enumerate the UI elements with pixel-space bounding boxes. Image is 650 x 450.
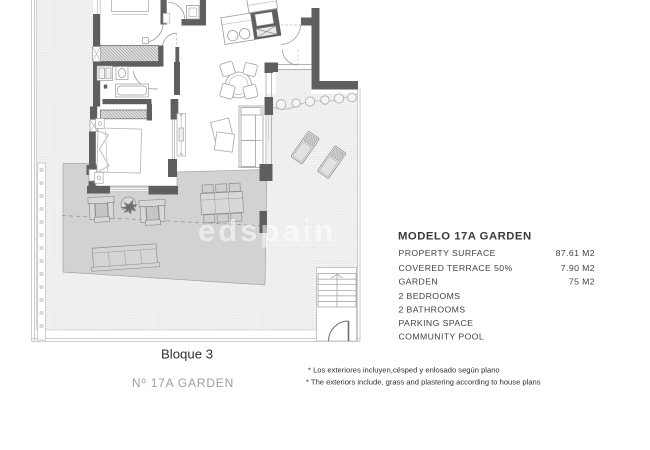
svg-text:PARKING SPACE: PARKING SPACE <box>399 318 474 328</box>
svg-text:Bloque 3: Bloque 3 <box>161 347 213 362</box>
svg-text:87.61 M2: 87.61 M2 <box>556 248 595 258</box>
svg-text:MODELO 17A GARDEN: MODELO 17A GARDEN <box>398 231 532 243</box>
svg-text:75 M2: 75 M2 <box>569 276 595 286</box>
svg-text:* Los exteriores incluyen,césp: * Los exteriores incluyen,césped y enlos… <box>308 366 500 375</box>
svg-text:edspain: edspain <box>198 213 336 248</box>
svg-text:* The exteriors include, grass: * The exteriors include, grass and plast… <box>306 378 541 387</box>
svg-text:PROPERTY SURFACE: PROPERTY SURFACE <box>399 248 496 258</box>
svg-text:GARDEN: GARDEN <box>399 276 439 286</box>
svg-text:COVERED TERRACE 50%: COVERED TERRACE 50% <box>399 263 513 273</box>
svg-text:2 BATHROOMS: 2 BATHROOMS <box>399 304 466 314</box>
svg-text:Nº 17A GARDEN: Nº 17A GARDEN <box>132 376 234 390</box>
svg-text:2 BEDROOMS: 2 BEDROOMS <box>399 291 461 301</box>
svg-text:COMMUNITY POOL: COMMUNITY POOL <box>399 331 485 341</box>
svg-text:7.90 M2: 7.90 M2 <box>561 263 595 273</box>
